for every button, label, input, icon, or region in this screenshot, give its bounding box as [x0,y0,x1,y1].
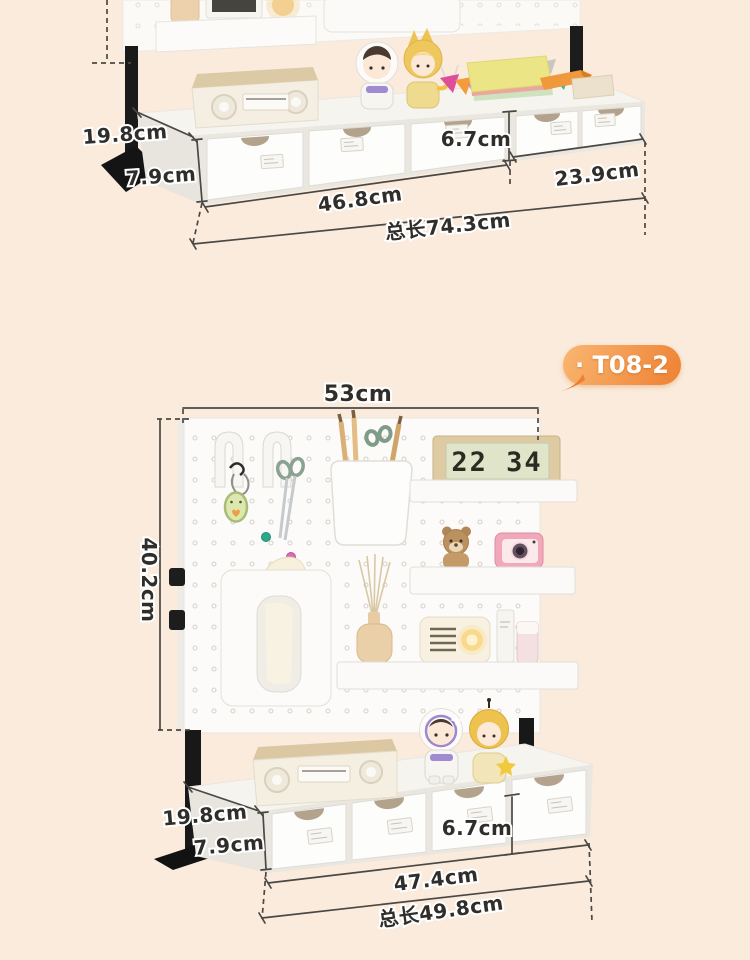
speaker-grille [212,0,256,12]
eye [230,501,233,504]
eye [239,501,242,504]
night-light-radio [420,617,490,663]
avocado-charm [225,493,247,522]
eye [460,540,463,543]
astronaut-doll [356,42,398,109]
shelf-long [337,662,578,689]
drawer-label-sticker [261,154,284,169]
candle-jar [171,0,199,22]
dim-label-height: 40.2cm [137,537,161,622]
eye [427,65,430,68]
pencil-tip [339,414,341,422]
radio-display [298,766,350,782]
bottle-pink-cap [517,622,538,634]
dim-label-total: 总长49.8cm [377,890,505,931]
tissue-box [221,557,331,706]
figure-top-photo: 19.8cm 7.9cm 6.7cm 23.9cm 46.8cm 总长74.3c… [0,0,750,300]
speaker-right-core [291,97,301,107]
avocado-body [225,493,247,522]
face [477,722,501,746]
eye [369,66,372,69]
wall-shelf [156,0,316,52]
drawer-label-sticker [595,113,616,126]
storage-bin [324,0,460,32]
retro-radio [253,739,397,806]
pencil-tip [399,416,401,424]
dim-label-module-right: 23.9cm [553,157,640,191]
small-box [572,75,614,99]
dim-label-drawer-height: 6.7cm [442,816,513,840]
drawer-label-sticker [341,137,364,152]
bottle-white [497,610,514,662]
panel-clip [169,610,185,630]
drawer-label-sticker [307,828,333,845]
pencil-tip [353,410,354,418]
tissue-paper [265,603,293,685]
dim-label-base-height: 7.9cm [125,162,197,191]
instant-camera [495,533,543,568]
eye [434,733,437,736]
astronaut-doll [420,709,463,785]
speaker-left-core [219,102,229,112]
push-pin-teal [262,533,271,542]
cup-body [331,461,412,545]
diffuser-bottle [357,624,392,663]
boot [429,776,440,784]
teddy-bear [442,527,471,570]
speaker-left-core [272,775,282,785]
shelf-front [156,16,316,52]
pencil-cup [331,410,412,545]
suit-band [366,86,388,93]
eye [450,540,453,543]
sticky-notes [467,56,553,101]
shelf-mid-right [410,567,575,594]
dim-label-drawer-height: 6.7cm [441,127,512,151]
shelf-top-right [410,480,577,502]
radio-display [243,94,289,110]
speaker-right-core [366,767,376,777]
product-dimension-infographic: 19.8cm 7.9cm 6.7cm 23.9cm 46.8cm 总长74.3c… [0,0,750,960]
panel-clip [169,568,185,586]
dim-label-width: 53cm [324,382,393,407]
pencil [354,418,356,463]
drawer-label-sticker [551,121,572,134]
eye [493,735,496,738]
camera-lens-core [516,547,524,555]
lamp-core [467,635,478,646]
antenna-tip [487,698,491,702]
clock-digits: 22 34 [451,447,542,478]
drawer-label-sticker [387,818,413,835]
eye [483,735,486,738]
figure-bottom-photo: 22 34 [0,370,750,960]
dim-extension-dashed [193,203,202,243]
eye [417,65,420,68]
digital-clock: 22 34 [433,436,560,486]
eye [381,66,384,69]
dress-body [407,82,439,108]
boot [443,776,454,784]
eye [445,733,448,736]
drawer-label-sticker [547,797,573,814]
camera-viewfinder [533,541,536,544]
suit-band [430,754,453,761]
bear-nose [454,543,458,547]
dim-label-total: 总长74.3cm [384,207,512,244]
retro-radio [192,67,318,128]
